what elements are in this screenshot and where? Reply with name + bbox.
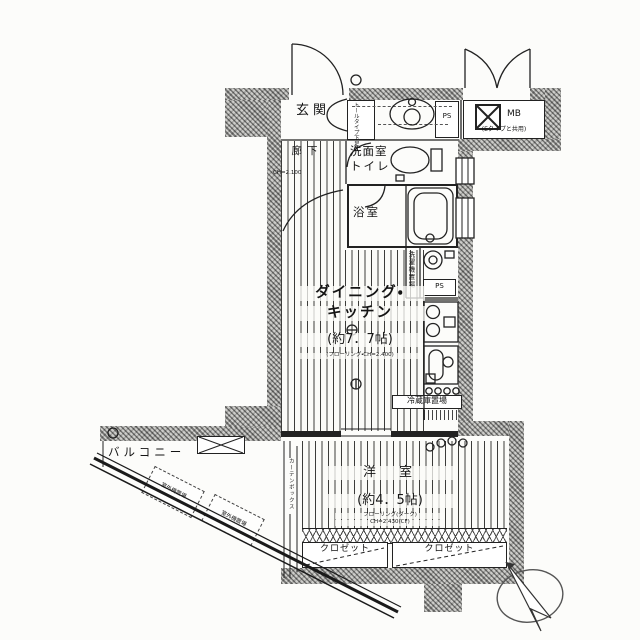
hallway-ceiling-height: CH=2.100 — [273, 171, 301, 177]
hallway-door-arc — [283, 190, 343, 231]
room-label-western-room: 洋 室 — [325, 466, 455, 480]
room-label-dk-line1: ダイニング・ — [295, 286, 425, 301]
stove-icon — [424, 302, 458, 342]
western-room-size: (約4．5帖) — [325, 494, 455, 508]
room-label-hallway: 廊下 — [287, 146, 327, 157]
meter-box-x-icon — [477, 106, 499, 128]
room-label-entrance: 玄関 — [284, 104, 342, 118]
mb-door-right-arc — [497, 49, 530, 88]
evacuation-hatch-x-icon — [199, 437, 243, 453]
label-meter-box: MB — [507, 110, 521, 119]
toilet-icon — [391, 147, 429, 173]
room-label-toilet: トイレ — [350, 160, 391, 172]
wall-symbol-balcony — [108, 428, 118, 438]
dk-floor-note: (フローリング・CH=2.400) — [298, 353, 422, 359]
label-balcony: バルコニー — [108, 446, 185, 458]
room-label-dk-line2: キッチン — [295, 306, 425, 321]
room-label-washroom: 洗面室 — [350, 145, 388, 157]
bedroom-symbol-2 — [437, 439, 445, 447]
bedroom-symbol-4 — [459, 439, 467, 447]
label-ps-top: PS — [436, 113, 458, 120]
label-closet-right: クロゼット — [392, 545, 507, 554]
bedroom-symbol-1 — [426, 443, 434, 451]
label-curtain-box: カーテンボックス — [287, 458, 293, 514]
bathroom-door-arc — [365, 186, 385, 207]
bathtub-icon — [408, 188, 453, 244]
meter-box-note: (Eタイプと共用) — [464, 127, 544, 133]
label-ps-mid: PS — [423, 283, 456, 290]
dk-size: (約7．7帖) — [300, 333, 420, 347]
floor-plan-page: { "colors": { "paper": "#fcfcfa", "ink":… — [0, 0, 640, 640]
mb-door-left-arc — [465, 49, 497, 88]
entrance-door-arc — [292, 44, 343, 95]
washer-icon — [424, 251, 442, 269]
western-room-note2: CH=2.430(CF) — [335, 520, 445, 526]
room-label-bathroom: 浴室 — [353, 206, 380, 218]
label-refrigerator: 冷蔵庫置場 — [392, 397, 462, 405]
compass-north-icon — [493, 562, 567, 631]
western-room-note1: フローリング(ダーク) — [335, 513, 445, 519]
wall-symbol-top — [351, 75, 361, 85]
label-closet-left: クロゼット — [302, 545, 388, 554]
bedroom-symbol-3 — [448, 437, 456, 445]
